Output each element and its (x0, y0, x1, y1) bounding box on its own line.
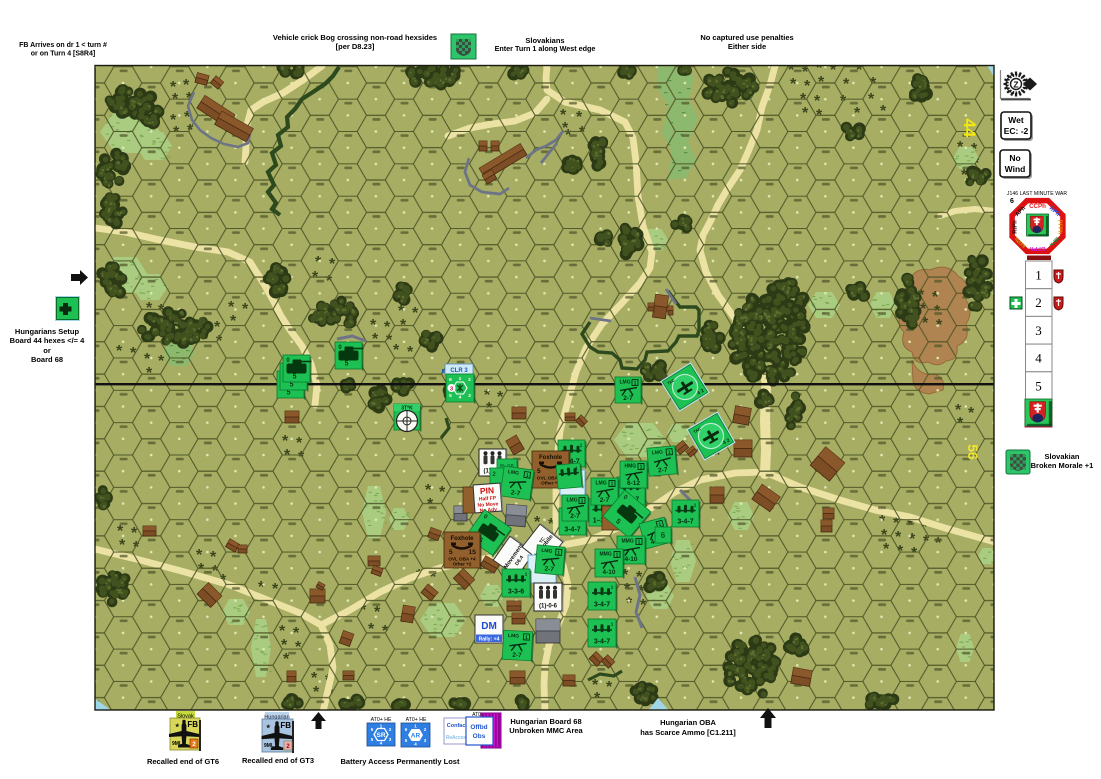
svg-text:Broken Morale +1: Broken Morale +1 (1031, 461, 1094, 470)
svg-text:6-12: 6-12 (627, 480, 640, 487)
svg-text:or: or (43, 346, 51, 355)
svg-text:Hungarians Setup: Hungarians Setup (15, 327, 80, 336)
svg-text:AT0+ HE: AT0+ HE (371, 717, 392, 723)
svg-text:MMG: MMG (622, 539, 634, 545)
svg-text:has Scarce Ammo [C1.211]: has Scarce Ammo [C1.211] (640, 728, 736, 737)
svg-text:1S: 1S (469, 550, 476, 556)
svg-text:FB: FB (280, 721, 291, 730)
svg-text:5: 5 (287, 390, 291, 397)
svg-text:5: 5 (449, 393, 452, 399)
svg-text:Hungarian Board 68: Hungarian Board 68 (510, 717, 581, 726)
svg-text:3-4-7: 3-4-7 (564, 527, 580, 534)
svg-text:5: 5 (345, 361, 349, 368)
svg-text:2-7: 2-7 (544, 566, 554, 574)
svg-text:2: 2 (1035, 295, 1042, 310)
svg-text:PFPh: PFPh (1057, 220, 1063, 235)
svg-text:1: 1 (638, 540, 641, 546)
svg-text:1: 1 (640, 465, 643, 471)
svg-text:2: 2 (468, 377, 471, 383)
svg-text:2-7: 2-7 (658, 467, 668, 475)
svg-text:AR: AR (411, 733, 421, 740)
svg-text:1: 1 (1035, 268, 1042, 283)
svg-text:2-7: 2-7 (510, 489, 521, 497)
svg-text:5: 5 (290, 382, 294, 389)
svg-text:Recalled end of GT6: Recalled end of GT6 (147, 757, 219, 766)
svg-text:Foxhole: Foxhole (450, 536, 474, 542)
svg-text:4: 4 (1035, 351, 1042, 366)
svg-text:5: 5 (293, 374, 297, 381)
svg-text:Offbd: Offbd (470, 724, 487, 731)
svg-text:LMG: LMG (567, 498, 578, 504)
svg-text:1: 1 (634, 381, 637, 387)
svg-text:PIN: PIN (480, 485, 495, 496)
svg-text:Enter Turn 1 along West edge: Enter Turn 1 along West edge (495, 44, 596, 53)
svg-text:6: 6 (1010, 198, 1014, 205)
svg-text:LMG: LMG (541, 548, 553, 555)
svg-text:Foxhole: Foxhole (539, 455, 563, 461)
svg-text:RtPh: RtPh (1013, 220, 1019, 234)
svg-text:3-4-7: 3-4-7 (594, 639, 610, 646)
svg-text:Hungarian OBA: Hungarian OBA (660, 718, 716, 727)
svg-text:3-3-6: 3-3-6 (508, 589, 524, 596)
svg-text:5: 5 (1035, 378, 1042, 393)
svg-text:Wet: Wet (1008, 115, 1024, 125)
svg-text:AT0+ HE: AT0+ HE (406, 717, 427, 723)
svg-text:LMG: LMG (596, 481, 607, 487)
svg-text:Slovakian: Slovakian (1044, 452, 1079, 461)
svg-text:2-7: 2-7 (600, 497, 610, 504)
svg-text:Other +2: Other +2 (453, 562, 472, 567)
svg-text:or on Turn 4 [S8R4]: or on Turn 4 [S8R4] (31, 51, 95, 58)
svg-text:4: 4 (459, 395, 462, 401)
svg-text:DFPh: DFPh (1029, 245, 1045, 251)
svg-text:3: 3 (1035, 323, 1042, 338)
svg-text:2-7: 2-7 (623, 395, 633, 402)
svg-text:LMG: LMG (508, 633, 520, 640)
svg-text:CCPh: CCPh (1029, 203, 1046, 210)
svg-text:1: 1 (581, 499, 584, 505)
svg-text:Z: Z (1013, 80, 1018, 90)
svg-text:EC: -2: EC: -2 (1004, 126, 1029, 136)
svg-text:6: 6 (449, 377, 452, 383)
svg-text:★: ★ (266, 724, 271, 730)
svg-text:Either side: Either side (728, 42, 766, 51)
svg-text:9ML: 9ML (264, 743, 274, 749)
svg-text:44: 44 (960, 119, 979, 138)
svg-text:CLR 3: CLR 3 (450, 368, 468, 374)
svg-text:Rally: +4: Rally: +4 (479, 637, 500, 643)
svg-text:ReAccess: ReAccess (446, 735, 469, 741)
svg-text:3-4-7: 3-4-7 (594, 602, 610, 609)
svg-text:5: 5 (449, 549, 453, 556)
svg-text:FB: FB (187, 720, 198, 729)
svg-text:Vehicle crick Bog crossing non: Vehicle crick Bog crossing non-road hexs… (273, 33, 437, 42)
svg-text:6: 6 (661, 531, 666, 540)
svg-text:1: 1 (616, 553, 619, 559)
svg-text:HMG: HMG (625, 464, 637, 470)
svg-text:Board 44 hexes </= 4: Board 44 hexes </= 4 (10, 336, 85, 345)
svg-text:[per D8.23]: [per D8.23] (336, 42, 375, 51)
svg-text:2-7: 2-7 (512, 652, 522, 660)
svg-text:FB Arrives on dr 1 < turn #: FB Arrives on dr 1 < turn # (19, 42, 107, 49)
svg-text:★: ★ (175, 723, 180, 729)
svg-text:4-10: 4-10 (624, 556, 637, 563)
svg-text:3: 3 (468, 393, 471, 399)
svg-text:MMG: MMG (600, 552, 612, 558)
svg-text:Board 68: Board 68 (31, 355, 63, 364)
svg-text:1: 1 (525, 635, 528, 641)
svg-text:SR: SR (376, 732, 385, 739)
svg-text:Wind: Wind (1005, 164, 1026, 174)
svg-text:No captured use penalties: No captured use penalties (700, 33, 793, 42)
svg-text:Battery Access Permanently Los: Battery Access Permanently Lost (341, 757, 460, 766)
svg-text:(1)-0-6: (1)-0-6 (539, 604, 558, 610)
svg-text:3: 3 (450, 387, 453, 393)
svg-text:No: No (1009, 153, 1020, 163)
svg-text:1: 1 (459, 376, 462, 382)
svg-text:Unbroken MMC Area: Unbroken MMC Area (509, 726, 583, 735)
svg-text:DM: DM (481, 621, 497, 632)
svg-text:J146 LAST MINUTE WAR: J146 LAST MINUTE WAR (1007, 191, 1067, 197)
svg-text:3-4-7: 3-4-7 (677, 519, 693, 526)
svg-text:LMG: LMG (652, 449, 664, 456)
svg-text:LMG: LMG (620, 380, 631, 386)
svg-text:Confact: Confact (447, 723, 468, 729)
svg-text:1: 1 (611, 482, 614, 488)
svg-text:Recalled end of GT3: Recalled end of GT3 (242, 756, 314, 765)
svg-text:9ML: 9ML (172, 741, 182, 747)
svg-text:5: 5 (537, 468, 541, 475)
svg-text:4-10: 4-10 (602, 569, 615, 576)
svg-text:Obs: Obs (473, 733, 486, 740)
svg-text:2-7: 2-7 (570, 513, 580, 520)
svg-text:56: 56 (965, 444, 981, 460)
